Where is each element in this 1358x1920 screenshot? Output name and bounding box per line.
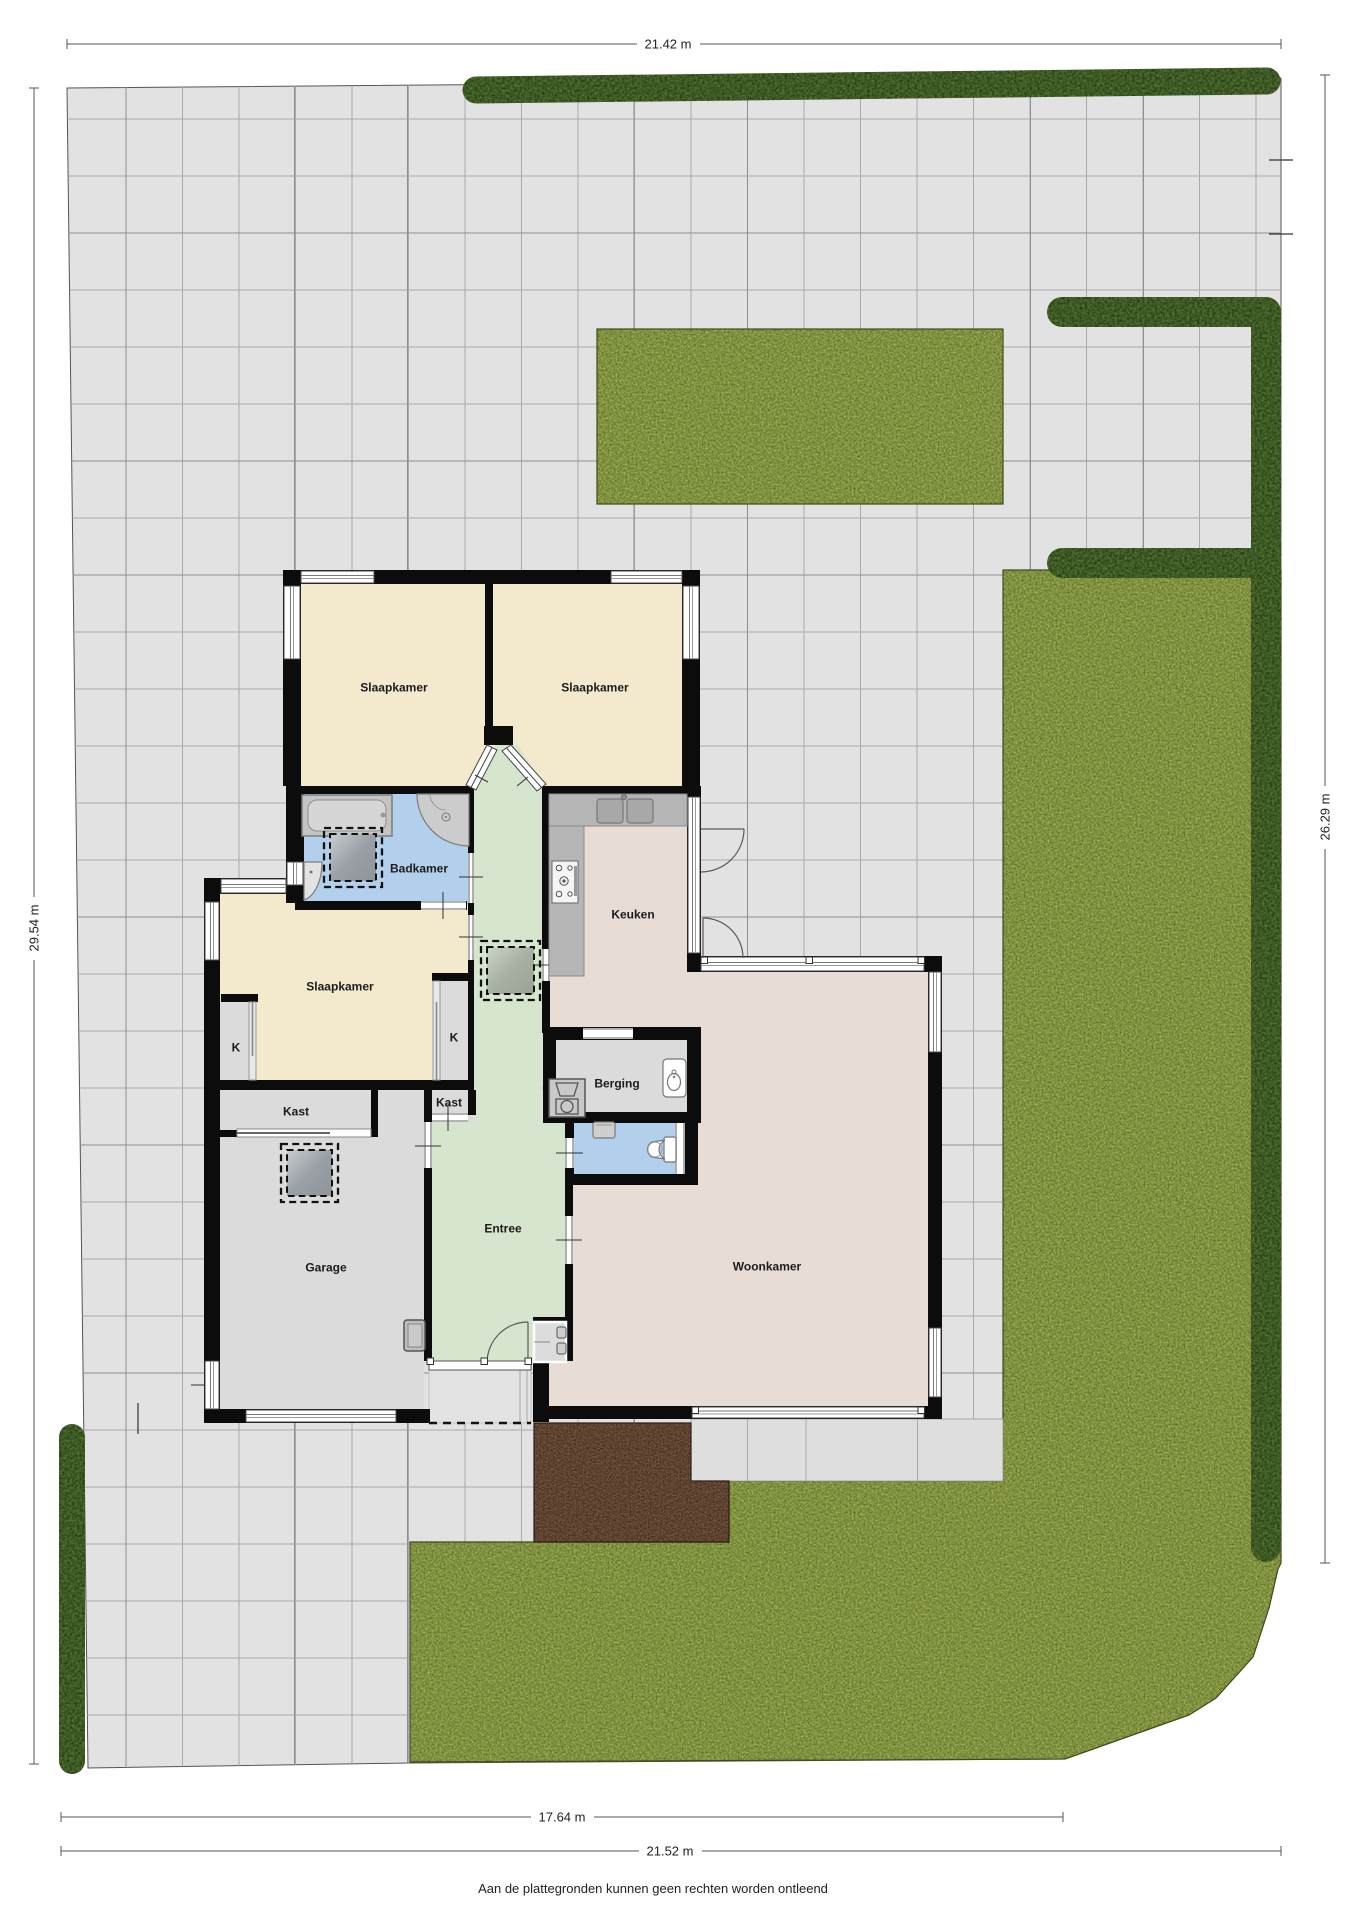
- svg-text:Aan de plattegronden kunnen ge: Aan de plattegronden kunnen geen rechten…: [478, 1881, 828, 1896]
- svg-text:21.52 m: 21.52 m: [647, 1844, 694, 1859]
- svg-text:Slaapkamer: Slaapkamer: [561, 681, 629, 695]
- svg-text:21.42 m: 21.42 m: [645, 37, 692, 52]
- svg-text:Kast: Kast: [283, 1105, 309, 1119]
- svg-text:Slaapkamer: Slaapkamer: [306, 980, 374, 994]
- svg-text:Woonkamer: Woonkamer: [733, 1260, 802, 1274]
- svg-text:Garage: Garage: [305, 1261, 347, 1275]
- svg-text:Keuken: Keuken: [611, 908, 654, 922]
- svg-text:K: K: [232, 1041, 241, 1055]
- svg-text:29.54 m: 29.54 m: [27, 905, 42, 952]
- svg-text:Entree: Entree: [484, 1222, 522, 1236]
- svg-text:Slaapkamer: Slaapkamer: [360, 681, 428, 695]
- svg-text:K: K: [450, 1031, 459, 1045]
- svg-text:26.29 m: 26.29 m: [1318, 794, 1333, 841]
- svg-text:Berging: Berging: [594, 1077, 639, 1091]
- svg-text:17.64 m: 17.64 m: [539, 1810, 586, 1825]
- svg-text:Badkamer: Badkamer: [390, 862, 448, 876]
- svg-text:Kast: Kast: [436, 1096, 462, 1110]
